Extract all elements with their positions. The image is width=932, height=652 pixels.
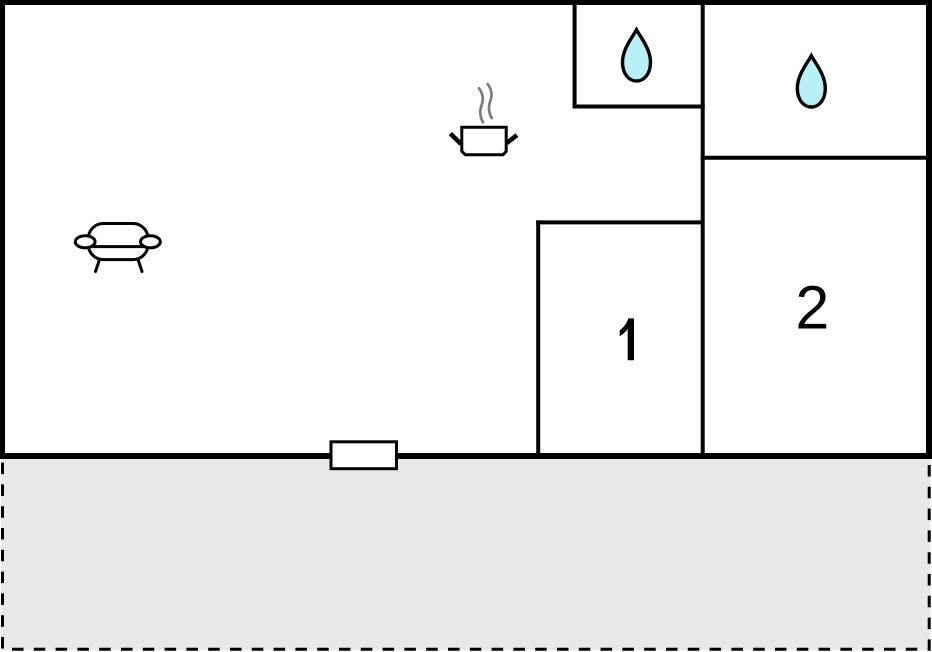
svg-text:2: 2: [795, 273, 829, 341]
